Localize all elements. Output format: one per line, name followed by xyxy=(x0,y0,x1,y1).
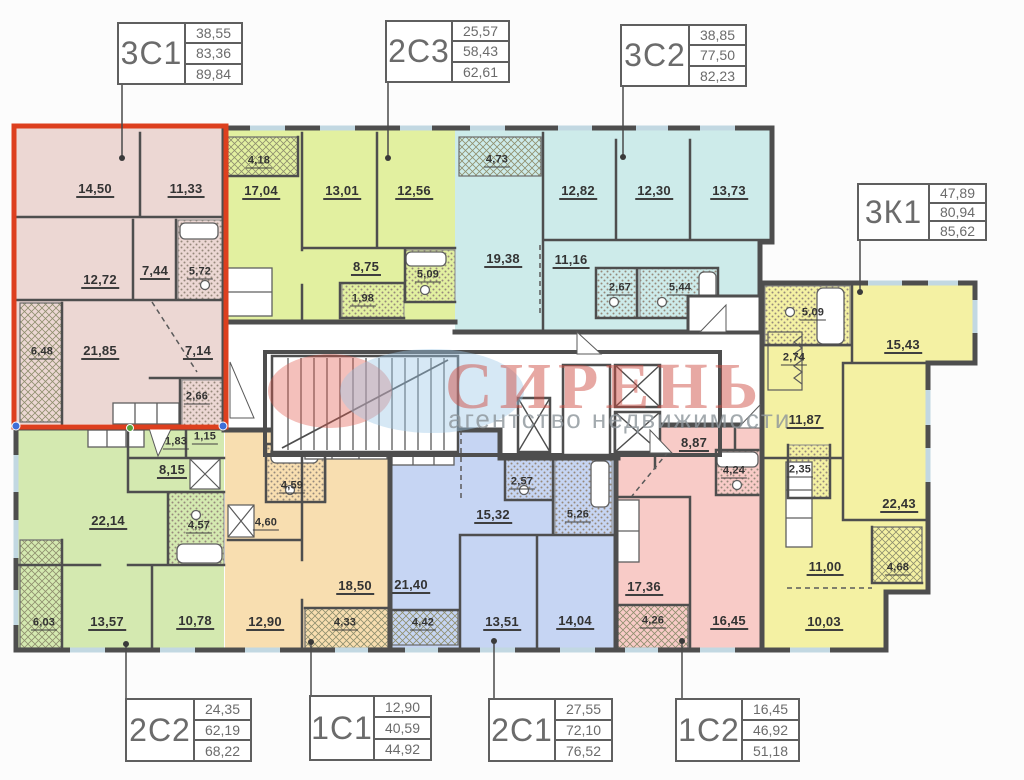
room-area-label: 1,98 xyxy=(350,292,376,307)
room-area-label: 2,67 xyxy=(607,281,633,296)
unit-code: 1С2 xyxy=(677,700,741,760)
room-area-label: 5,44 xyxy=(667,281,693,296)
unit-code: 3С2 xyxy=(622,26,688,85)
room-area-label: 4,68 xyxy=(885,561,911,576)
room-area-label: 10,03 xyxy=(805,615,843,631)
room-area-label: 16,45 xyxy=(710,614,748,630)
unit-area-value: 38,55 xyxy=(186,24,241,44)
room-area-label: 7,14 xyxy=(183,344,213,360)
room-area-label: 13,51 xyxy=(483,615,521,631)
room-area-label: 8,87 xyxy=(679,436,709,452)
room-area-label: 10,78 xyxy=(176,614,214,630)
room-area-label: 11,00 xyxy=(807,560,844,576)
room-area-label: 5,72 xyxy=(187,265,213,280)
unit-code: 3К1 xyxy=(859,185,928,239)
unit-code: 3С1 xyxy=(119,24,184,83)
room-area-label: 2,74 xyxy=(781,351,807,366)
room-area-label: 4,60 xyxy=(253,516,279,531)
room-area-label: 21,85 xyxy=(81,344,119,360)
room-area-label: 22,14 xyxy=(89,514,127,530)
unit-area-value: 25,57 xyxy=(453,22,508,42)
room-area-label: 12,30 xyxy=(635,184,673,200)
unit-area-value: 76,52 xyxy=(556,741,611,760)
unit-area-value: 38,85 xyxy=(690,26,745,46)
unit-area-value: 46,92 xyxy=(743,721,798,742)
unit-code: 2С3 xyxy=(387,22,451,81)
room-area-label: 1,15 xyxy=(192,430,218,445)
room-area-label: 12,56 xyxy=(395,184,433,200)
room-area-label: 17,36 xyxy=(625,580,663,596)
room-area-label: 2,66 xyxy=(184,390,210,405)
room-area-label: 11,87 xyxy=(787,413,824,429)
unit-area-value: 24,35 xyxy=(195,700,250,721)
room-area-label: 12,72 xyxy=(81,273,119,289)
room-area-label: 12,90 xyxy=(246,615,284,631)
room-area-label: 14,50 xyxy=(76,182,114,198)
unit-area-value: 82,23 xyxy=(690,67,745,85)
room-area-label: 4,26 xyxy=(640,614,666,629)
unit-area-value: 12,90 xyxy=(375,697,430,718)
room-area-label: 1,83 xyxy=(163,435,189,450)
room-area-label: 15,32 xyxy=(474,508,512,524)
room-area-label: 21,40 xyxy=(392,578,430,594)
unit-area-value: 80,94 xyxy=(930,204,985,223)
room-area-label: 13,01 xyxy=(323,184,361,200)
entrance-porch xyxy=(688,296,760,332)
unit-area-value: 68,22 xyxy=(195,741,250,760)
unit-code: 2С1 xyxy=(490,700,554,760)
unit-area-value: 16,45 xyxy=(743,700,798,721)
unit-callout-3c1: 3С1 38,55 83,36 89,84 xyxy=(117,22,243,85)
unit-area-value: 58,43 xyxy=(453,42,508,62)
room-area-label: 22,43 xyxy=(880,497,918,513)
unit-callout-2c3: 2С3 25,57 58,43 62,61 xyxy=(385,20,510,83)
unit-callout-2c2: 2С2 24,35 62,19 68,22 xyxy=(125,698,252,762)
room-area-label: 17,04 xyxy=(242,184,280,200)
room-area-label: 4,59 xyxy=(279,479,305,494)
unit-callout-1c2: 1С2 16,45 46,92 51,18 xyxy=(675,698,800,762)
room-area-label: 6,03 xyxy=(31,616,57,631)
unit-area-value: 40,59 xyxy=(375,718,430,739)
unit-area-value: 85,62 xyxy=(930,222,985,239)
room-area-label: 4,73 xyxy=(484,153,510,168)
unit-area-value: 77,50 xyxy=(690,46,745,66)
unit-area-value: 72,10 xyxy=(556,721,611,742)
room-area-label: 15,43 xyxy=(884,338,922,354)
unit-callout-2c1: 2С1 27,55 72,10 76,52 xyxy=(488,698,613,762)
unit-area-value: 83,36 xyxy=(186,44,241,64)
unit-area-value: 62,61 xyxy=(453,63,508,81)
floorplan-page: СИРЕНЬ агентство недвижимости 3С1 38,55 … xyxy=(0,0,1024,780)
room-area-label: 19,38 xyxy=(484,252,522,268)
room-area-label: 4,57 xyxy=(186,519,212,534)
unit-callout-1c1: 1С1 12,90 40,59 44,92 xyxy=(309,695,432,761)
unit-callout-3c2: 3С2 38,85 77,50 82,23 xyxy=(620,24,747,87)
unit-area-value: 51,18 xyxy=(743,741,798,760)
unit-area-value: 89,84 xyxy=(186,65,241,83)
room-area-label: 5,26 xyxy=(565,508,591,523)
room-area-label: 2,57 xyxy=(509,475,535,490)
room-area-label: 18,50 xyxy=(336,579,374,595)
room-area-label: 4,18 xyxy=(246,154,272,169)
watermark-subtitle-text: агентство недвижимости xyxy=(448,404,791,434)
unit-area-value: 62,19 xyxy=(195,721,250,742)
room-area-label: 4,24 xyxy=(721,464,747,479)
unit-area-value: 47,89 xyxy=(930,185,985,204)
room-area-label: 13,73 xyxy=(710,184,748,200)
room-area-label: 12,82 xyxy=(559,184,597,200)
room-area-label: 2,35 xyxy=(787,463,813,478)
room-area-label: 7,44 xyxy=(140,264,170,280)
unit-code: 2С2 xyxy=(127,700,193,760)
floor-plan-canvas: СИРЕНЬ агентство недвижимости xyxy=(0,0,1024,780)
room-area-label: 8,75 xyxy=(351,260,381,276)
room-area-label: 11,16 xyxy=(553,253,590,269)
room-area-label: 5,09 xyxy=(800,306,826,321)
unit-code: 1С1 xyxy=(311,697,373,759)
room-area-label: 14,04 xyxy=(556,614,594,630)
room-area-label: 5,09 xyxy=(415,268,441,283)
room-area-label: 13,57 xyxy=(88,615,126,631)
unit-callout-3k1: 3К1 47,89 80,94 85,62 xyxy=(857,183,987,241)
room-area-label: 4,33 xyxy=(332,616,358,631)
room-area-label: 8,15 xyxy=(157,463,187,479)
room-area-label: 6,48 xyxy=(29,345,55,360)
unit-area-value: 44,92 xyxy=(375,740,430,759)
unit-area-value: 27,55 xyxy=(556,700,611,721)
room-area-label: 11,33 xyxy=(168,182,205,198)
room-area-label: 4,42 xyxy=(410,616,436,631)
